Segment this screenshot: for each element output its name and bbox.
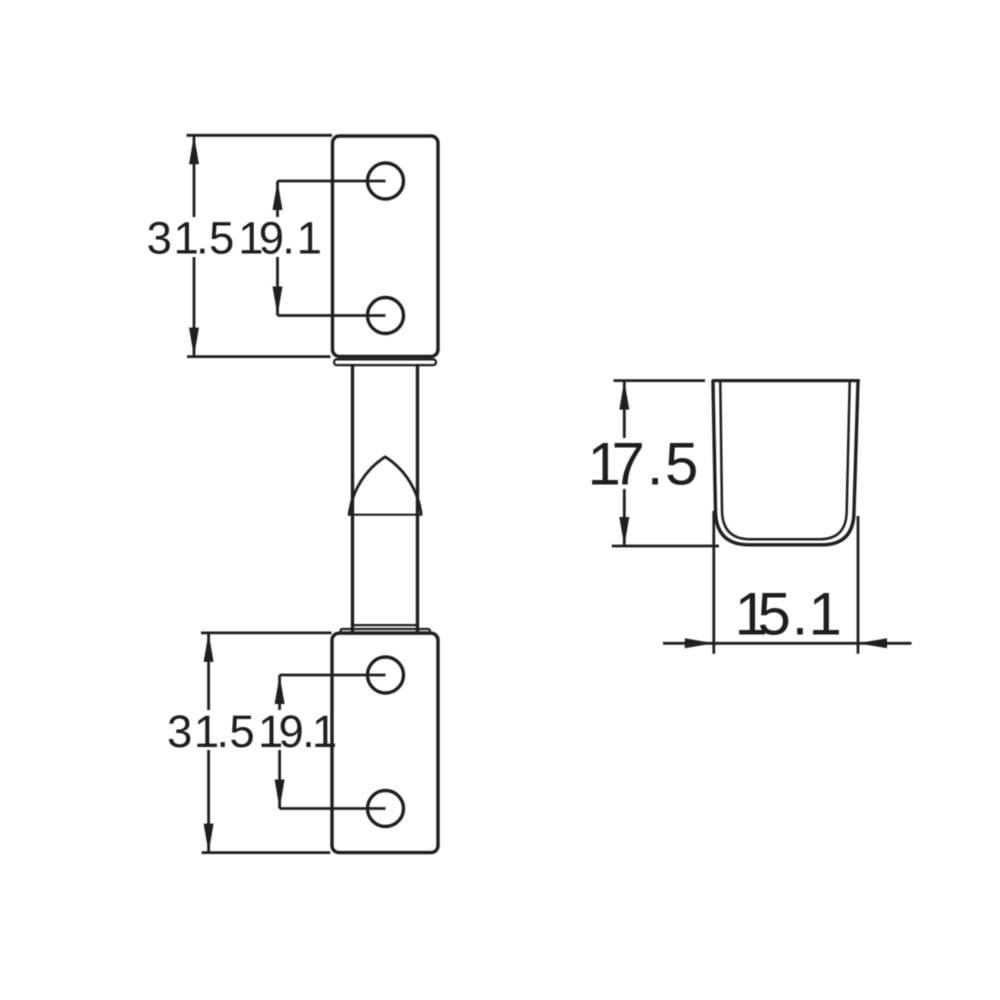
svg-text:19.1: 19.1 [238, 213, 322, 264]
svg-text:19.1: 19.1 [258, 706, 337, 757]
svg-text:15.1: 15.1 [735, 581, 842, 648]
svg-text:31.5: 31.5 [147, 213, 235, 264]
svg-text:17.5: 17.5 [588, 431, 699, 498]
svg-text:31.5: 31.5 [167, 706, 255, 757]
